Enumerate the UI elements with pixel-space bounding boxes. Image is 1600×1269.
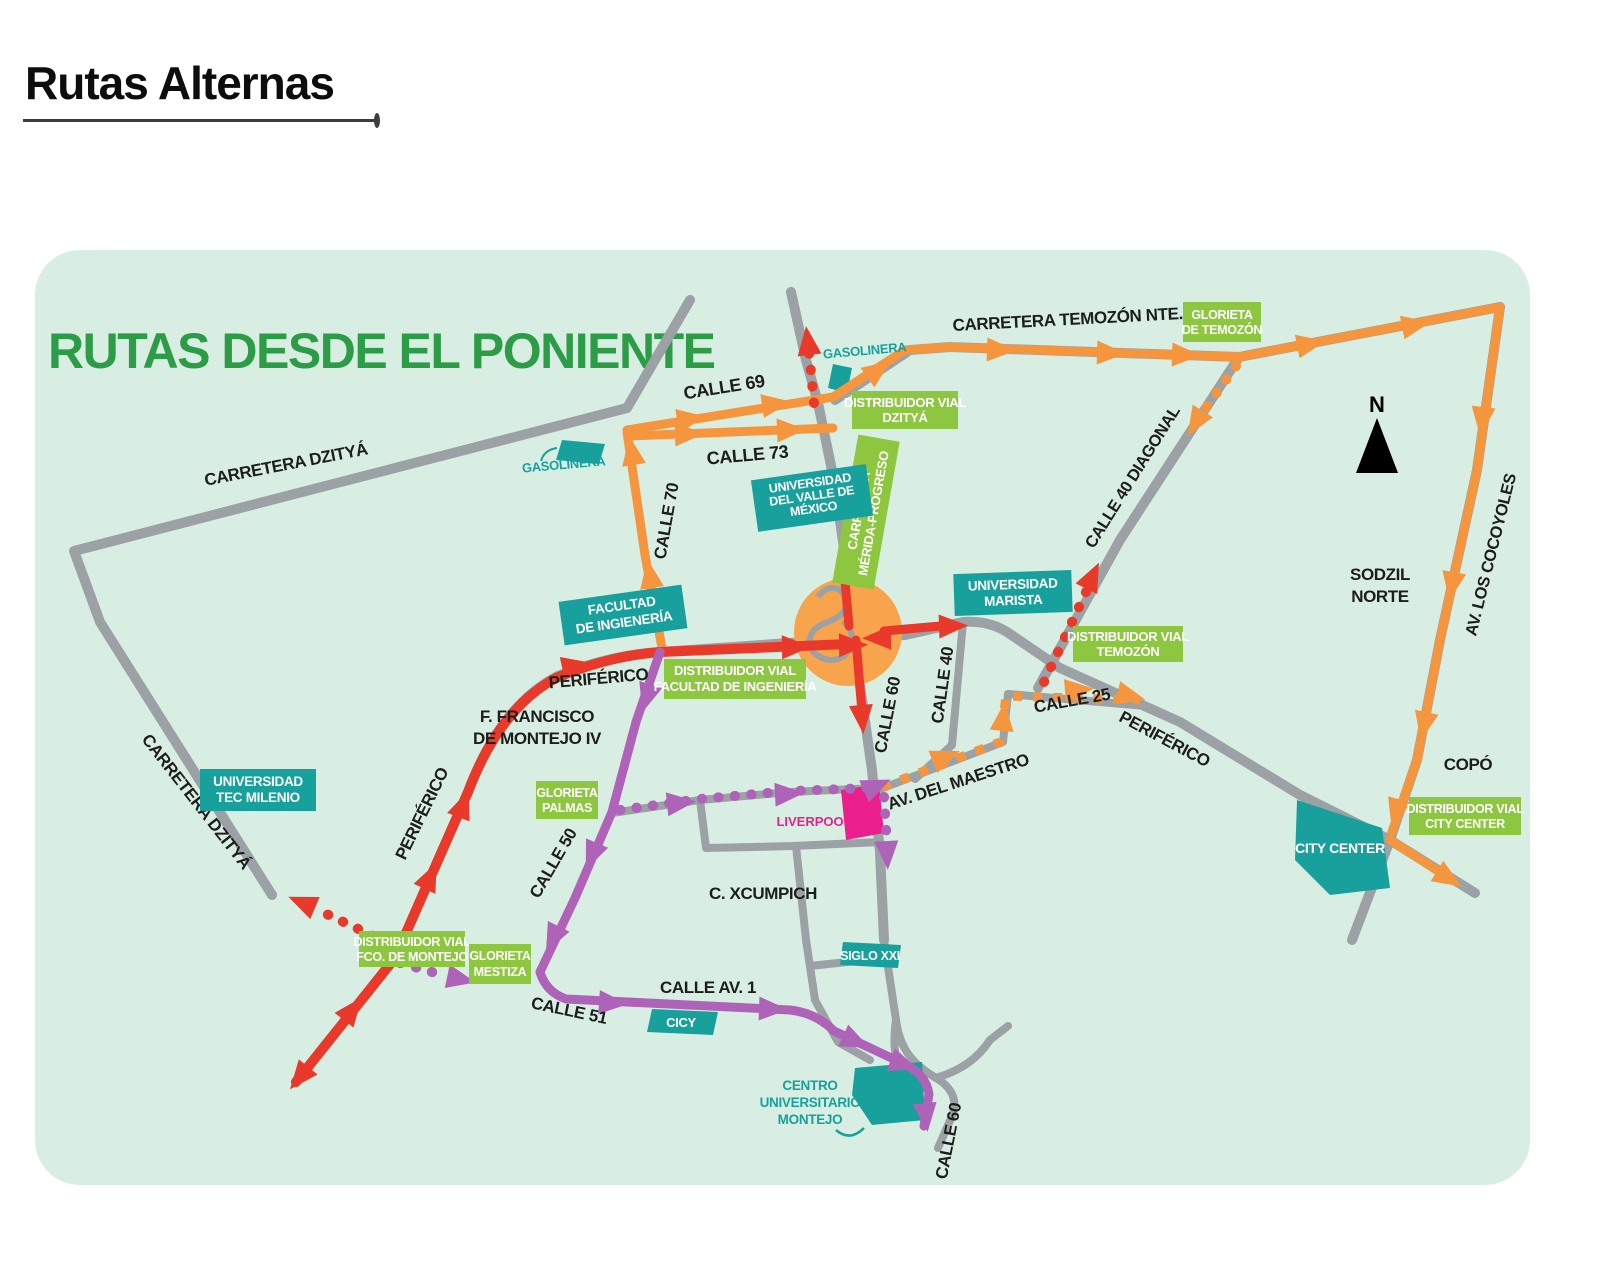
label-f-francisco: DE MONTEJO IV [473,729,602,748]
city-center-label: CITY CENTER [1295,840,1385,856]
svg-text:DISTRIBUIDOR VIAL: DISTRIBUIDOR VIAL [1406,802,1524,816]
badge-universidad-tec-milenio: UNIVERSIDAD TEC MILENIO [200,769,316,811]
svg-text:DISTRIBUIDOR VIAL: DISTRIBUIDOR VIAL [1067,629,1189,644]
svg-text:GLORIETA: GLORIETA [469,949,531,963]
map-background [35,250,1530,1185]
svg-text:FCO. DE MONTEJO: FCO. DE MONTEJO [356,950,468,964]
badge-distribuidor-vial-fco-montejo: DISTRIBUIDOR VIAL FCO. DE MONTEJO [353,931,471,967]
label-centro-universitario: MONTEJO [778,1112,843,1127]
svg-text:DISTRIBUIDOR VIAL: DISTRIBUIDOR VIAL [353,935,471,949]
route-red-calle60-down [856,640,862,712]
label-sodzil-norte: NORTE [1351,587,1409,606]
svg-text:PALMAS: PALMAS [542,801,592,815]
svg-text:TEC MILENIO: TEC MILENIO [216,790,300,805]
routes-map: RUTAS DESDE EL PONIENTE [35,250,1530,1185]
badge-cicy-label: CICY [666,1015,696,1030]
title-underline [23,119,375,122]
label-f-francisco: F. FRANCISCO [480,707,594,726]
label-centro-universitario: UNIVERSITARIO [760,1095,861,1110]
svg-text:CITY CENTER: CITY CENTER [1425,817,1505,831]
svg-text:UNIVERSIDAD: UNIVERSIDAD [213,774,303,789]
badge-siglo-xxi-label: SIGLO XXI [840,949,900,963]
badge-distribuidor-vial-city-center: DISTRIBUIDOR VIAL CITY CENTER [1406,797,1524,835]
svg-text:DISTRIBUIDOR VIAL: DISTRIBUIDOR VIAL [844,395,966,410]
page-title: Rutas Alternas [25,56,334,110]
svg-text:UNIVERSIDAD: UNIVERSIDAD [968,575,1059,593]
label-calle-av-1: CALLE AV. 1 [660,978,756,997]
compass-n-label: N [1369,392,1385,417]
svg-text:DISTRIBUIDOR VIAL: DISTRIBUIDOR VIAL [674,663,796,678]
label-c-xcumpich: C. XCUMPICH [709,884,817,903]
map-title: RUTAS DESDE EL PONIENTE [48,323,715,379]
svg-text:MARISTA: MARISTA [984,592,1043,609]
svg-text:TEMOZÓN: TEMOZÓN [1097,644,1160,659]
svg-text:DZITYÁ: DZITYÁ [882,410,928,425]
badge-glorieta-de-temozon: GLORIETA DE TEMOZÓN [1182,302,1263,342]
label-liverpool: LIVERPOOL [776,814,851,829]
badge-distribuidor-vial-facultad: DISTRIBUIDOR VIAL FACULTAD DE INGENIERÍA [654,659,818,699]
label-centro-universitario: CENTRO [782,1078,837,1093]
svg-text:GLORIETA: GLORIETA [536,786,598,800]
label-copo: COPÓ [1444,755,1493,774]
svg-text:FACULTAD DE INGENIERÍA: FACULTAD DE INGENIERÍA [654,679,818,694]
svg-text:MESTIZA: MESTIZA [474,965,527,979]
svg-text:DE TEMOZÓN: DE TEMOZÓN [1182,322,1263,337]
svg-text:GLORIETA: GLORIETA [1191,308,1253,322]
badge-distribuidor-vial-temozon: DISTRIBUIDOR VIAL TEMOZÓN [1067,626,1189,662]
badge-distribuidor-vial-dzitya: DISTRIBUIDOR VIAL DZITYÁ [844,391,966,429]
underline-end-tick [374,113,380,128]
badge-glorieta-palmas: GLORIETA PALMAS [536,781,598,819]
label-sodzil-norte: SODZIL [1350,565,1410,584]
badge-universidad-marista: UNIVERSIDAD MARISTA [953,570,1072,616]
badge-glorieta-mestiza: GLORIETA MESTIZA [469,944,531,984]
